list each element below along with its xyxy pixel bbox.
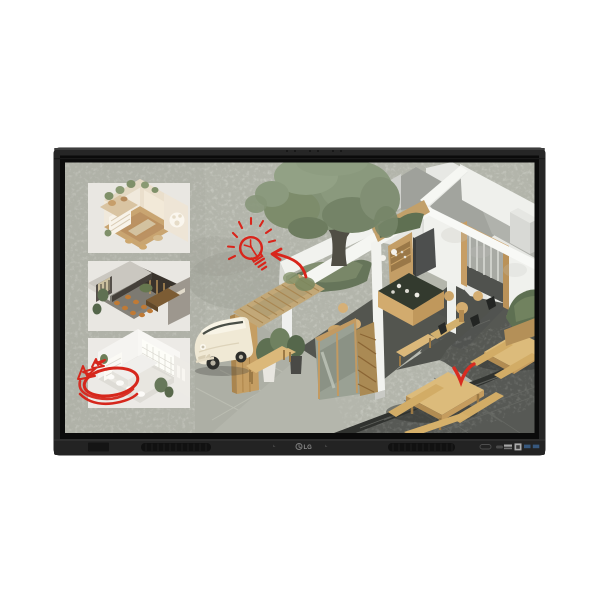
svg-text:LG: LG [304, 445, 313, 451]
